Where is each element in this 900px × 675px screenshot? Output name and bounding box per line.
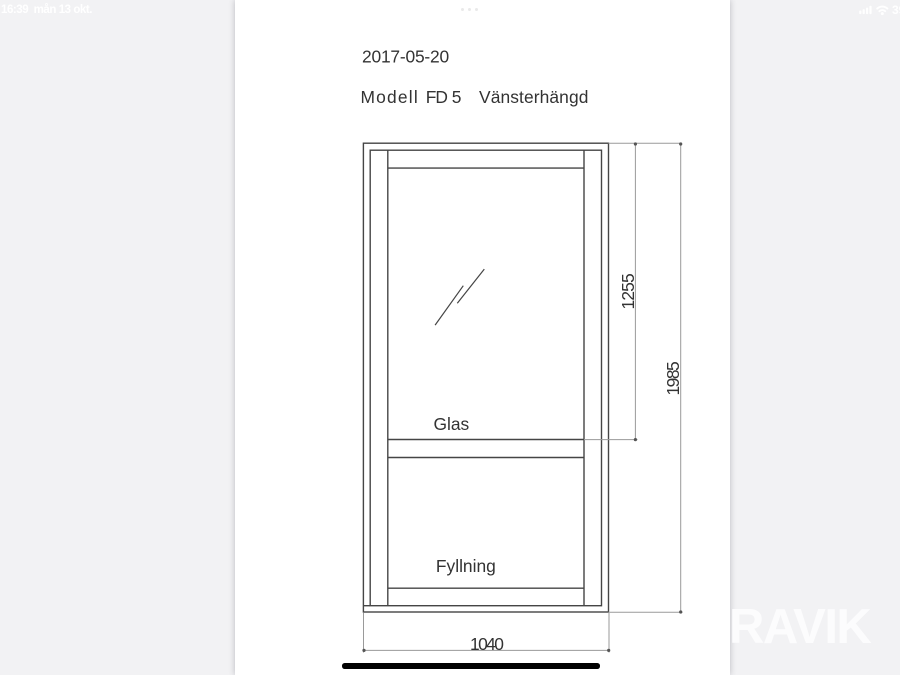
svg-text:1985: 1985 (663, 362, 683, 396)
svg-text:Fyllning: Fyllning (436, 556, 496, 576)
svg-text:5: 5 (452, 87, 462, 107)
svg-text:Modell: Modell (361, 87, 419, 107)
svg-text:1040: 1040 (470, 634, 503, 654)
svg-text:2017-05-20: 2017-05-20 (362, 47, 449, 67)
svg-text:Vänsterhängd: Vänsterhängd (479, 87, 589, 107)
svg-text:FD: FD (426, 87, 448, 107)
svg-text:Glas: Glas (434, 414, 470, 434)
svg-text:1255: 1255 (618, 274, 638, 309)
